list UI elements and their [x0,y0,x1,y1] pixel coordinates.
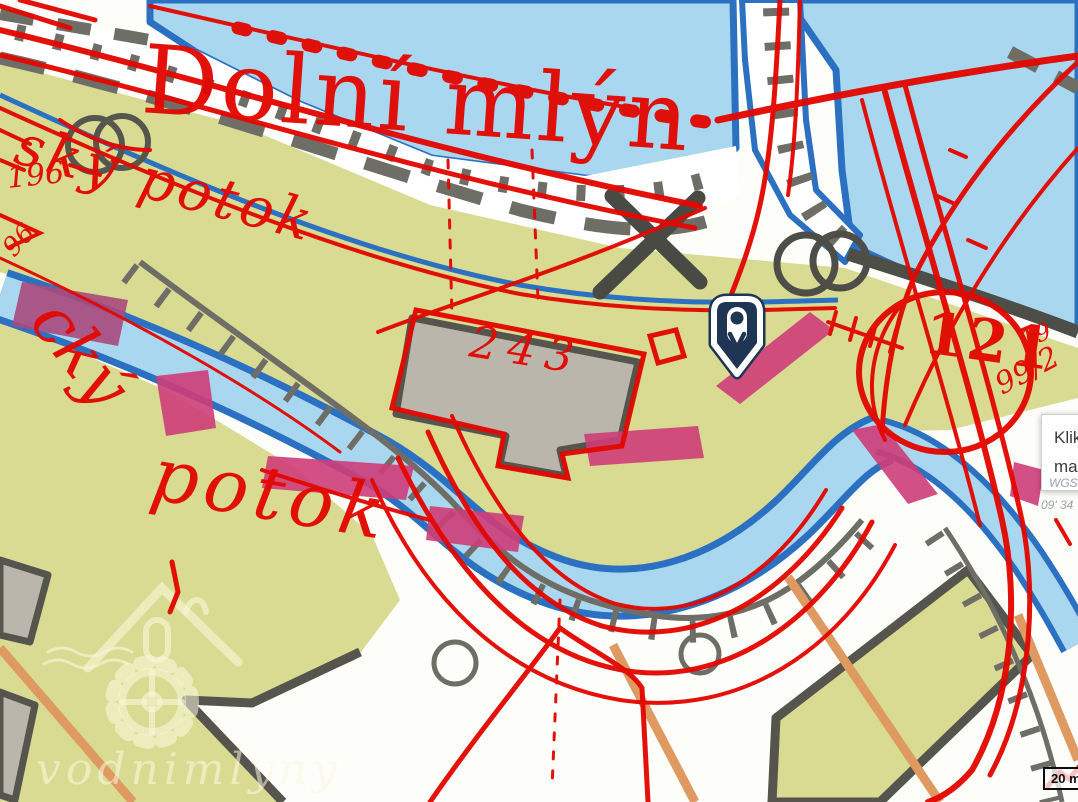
coordinate-label: 09' 34 [1041,498,1073,512]
scale-bar: 20 m [1043,767,1078,790]
watermark-text: vodnimlyny [36,744,342,795]
map-canvas[interactable]: vodnimlyny [0,0,1078,802]
map-viewport[interactable]: vodnimlyny [0,0,1078,802]
tree-circle [434,642,476,684]
marker-dot [731,312,744,325]
historic-building [156,370,216,436]
overlay-parcel-number: 196 [5,155,66,196]
tooltip-line: Klik [1054,423,1078,452]
red-marks [1056,520,1070,544]
scale-label: 20 m [1051,771,1078,786]
coordinate-label: WGS [1049,476,1078,490]
